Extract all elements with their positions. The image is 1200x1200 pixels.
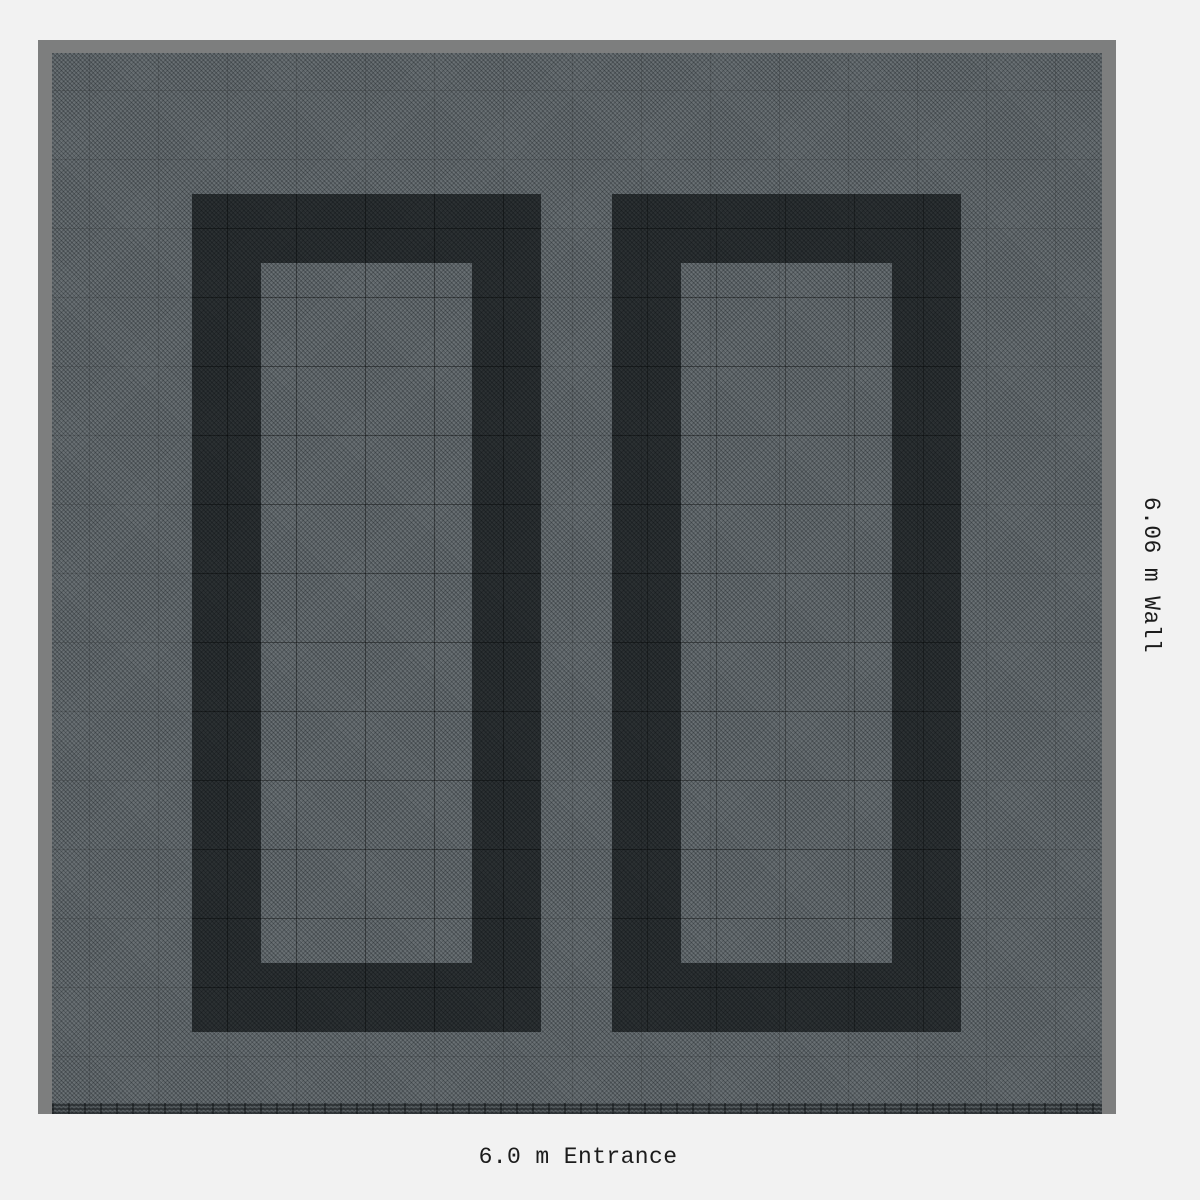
entrance-dimension-label: 6.0 m Entrance	[479, 1144, 678, 1170]
entrance-threshold	[52, 1103, 1102, 1114]
floor-plan: 6.06 m Wall 6.0 m Entrance	[0, 0, 1200, 1200]
pillar-left	[192, 194, 541, 1032]
wall-dimension-label: 6.06 m Wall	[1138, 497, 1164, 653]
room-walls	[38, 40, 1116, 1114]
pillar-right	[612, 194, 961, 1032]
floor	[52, 53, 1102, 1114]
